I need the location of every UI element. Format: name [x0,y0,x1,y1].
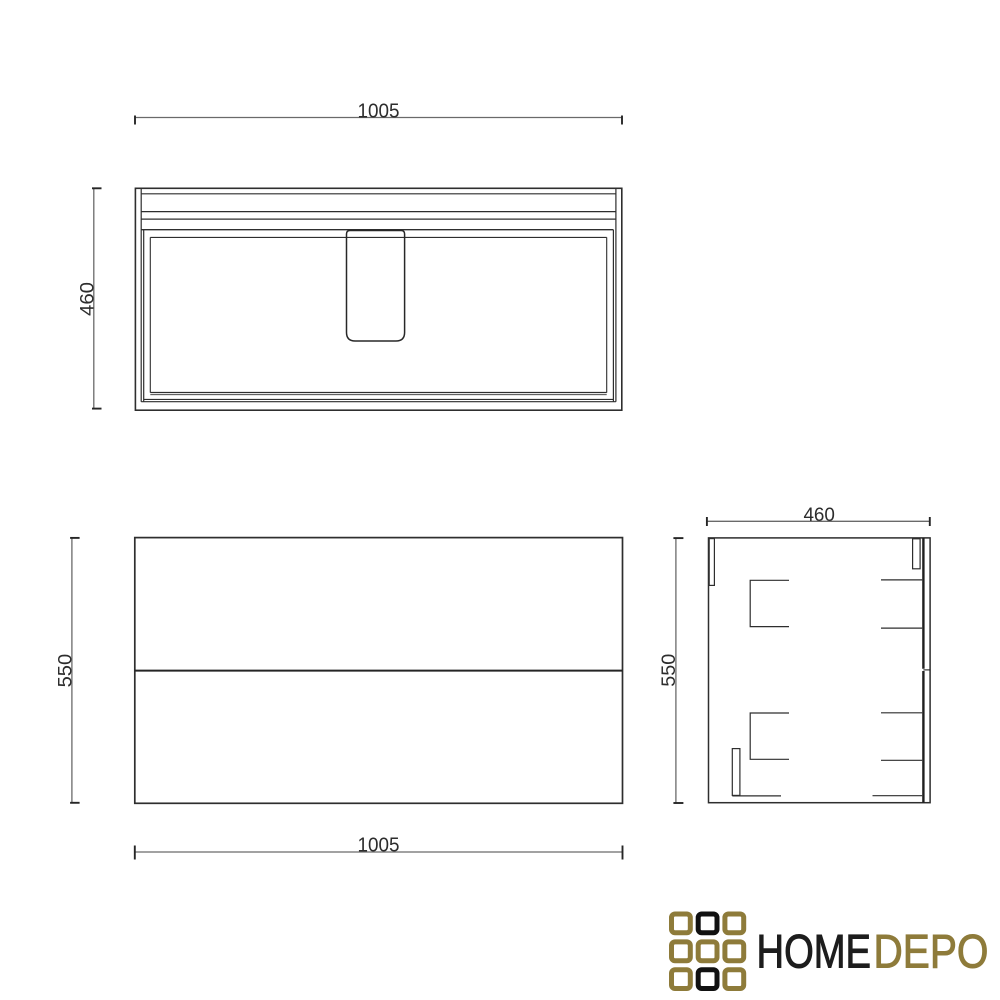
svg-text:460: 460 [803,505,835,526]
svg-text:DEPO: DEPO [874,926,989,979]
svg-text:1005: 1005 [358,100,400,123]
svg-text:460: 460 [77,282,98,316]
svg-text:550: 550 [54,654,76,688]
svg-text:550: 550 [659,654,680,687]
svg-text:HOME: HOME [757,926,872,979]
svg-text:1005: 1005 [358,834,400,857]
